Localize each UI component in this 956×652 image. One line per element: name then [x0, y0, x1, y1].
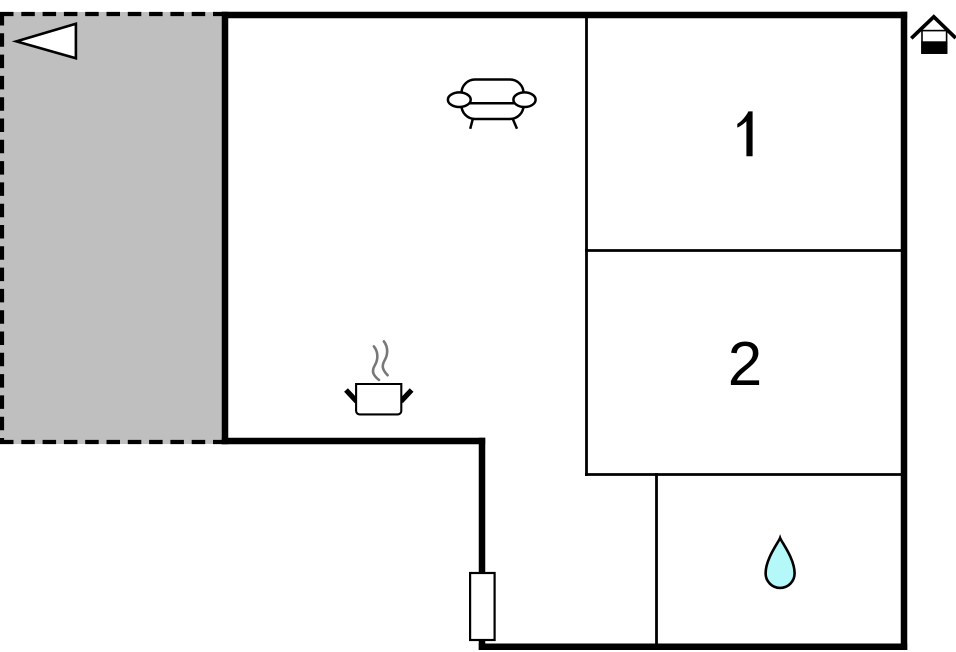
svg-text:2: 2: [728, 330, 762, 399]
